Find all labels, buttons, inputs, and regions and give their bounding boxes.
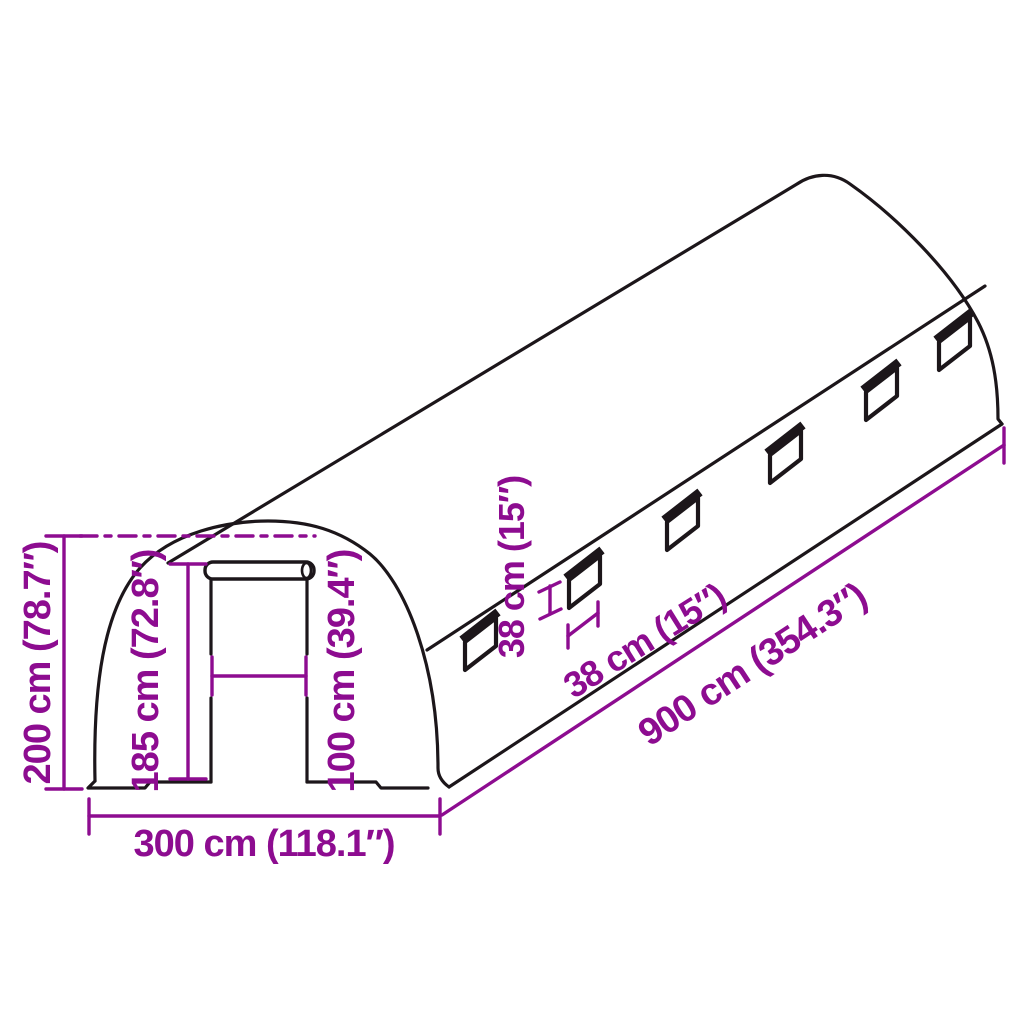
side-window-4: [767, 425, 803, 483]
door-roll: [205, 562, 314, 579]
diagram-canvas: 200 cm (78.7″) 185 cm (72.8″) 100 cm (39…: [0, 0, 1024, 1024]
window-height-label: 38 cm (15″): [491, 476, 532, 658]
door-height-label: 185 cm (72.8″): [125, 550, 167, 793]
door-width-label: 100 cm (39.4″): [321, 550, 363, 793]
greenhouse-dimension-diagram: 200 cm (78.7″) 185 cm (72.8″) 100 cm (39…: [0, 0, 1024, 1024]
side-window-3: [664, 492, 700, 550]
dimension-labels: 200 cm (78.7″) 185 cm (72.8″) 100 cm (39…: [17, 476, 874, 865]
side-window-6: [936, 312, 972, 370]
window-width-dim-line: [568, 613, 598, 636]
total-height-label: 200 cm (78.7″): [17, 542, 59, 785]
total-width-label: 300 cm (118.1″): [134, 823, 395, 865]
side-window-2: [566, 550, 602, 608]
side-window-5: [863, 362, 899, 420]
structure-outlines: [88, 175, 1002, 788]
